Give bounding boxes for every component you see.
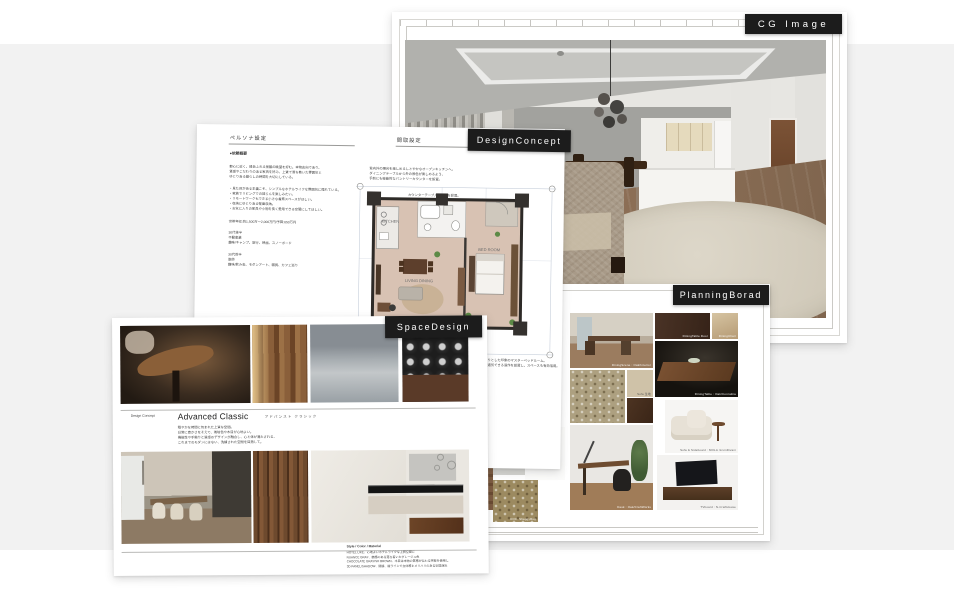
cg-ceiling-detector — [557, 51, 564, 56]
cg-pendant-cord — [610, 40, 611, 96]
pb-sample-chair: DiningChair — [712, 313, 738, 339]
layout-header: 間取設定 — [397, 137, 422, 144]
plan-living-label: LIVING DINING — [405, 278, 433, 283]
pb-dining-photo: DiningScene : Oak/Interior — [570, 313, 653, 368]
tile-sample — [368, 496, 463, 515]
material-title: Style / Color / Material — [347, 543, 479, 549]
sd-chair-photo — [120, 325, 251, 404]
style-name: Advanced Classic — [178, 411, 249, 421]
template-line — [486, 532, 758, 533]
header-rule — [229, 143, 355, 146]
pb-tv-board-photo: TVboard : N-CraftHouse — [657, 455, 738, 510]
concept-label: Design Concept — [131, 414, 155, 418]
persona-header: ペルソナ設定 — [230, 134, 267, 142]
sd-material-collage — [311, 450, 470, 543]
pb-sample-door: DiningTable Door — [655, 313, 710, 339]
divider-rule — [121, 407, 476, 410]
sd-interior-photo — [121, 451, 252, 544]
material-lines: HOTEL LIKE、心地よいホテルライクな上質空間に NUANCE GRAY、… — [347, 549, 479, 568]
pb-desk-photo: Desk : Oak/CraftWorks — [570, 425, 653, 510]
design-concept-label: DesignConcept — [468, 129, 571, 152]
pb-walnut-table-photo: DiningTable : Oak/Connubia — [655, 341, 738, 397]
overview-title: ●依頼概要 — [230, 151, 248, 157]
plan-bedroom-label: BED ROOM — [478, 247, 500, 252]
wood-sample — [409, 518, 463, 534]
presentation-canvas: CG Image DiningScene : Oak/Interior Dini… — [0, 0, 954, 604]
pb-dark-sample — [627, 398, 653, 423]
sd-wood-slats-photo — [253, 451, 309, 543]
style-kana: アドバンスト クラシック — [265, 415, 318, 420]
plan-kitchen-label: KITCHEN — [382, 219, 400, 224]
wish-list: ・見た目がある主義こそ、シンプルなホテルライクな雰囲気に憧れている。 ・家族でリ… — [229, 186, 364, 213]
planning-board-label: PlanningBorad — [673, 285, 769, 305]
space-design-label: SpaceDesign — [385, 315, 482, 338]
pb-white-sofa-photo: Sofa & Sideboard : MOLA /LivinDivani — [665, 400, 738, 453]
pb-gold-carpet-sample: COC. ShaggyRug — [493, 480, 538, 522]
style-paragraph: 穏やかな時間に包まれた上質な空間。 日常に豊かさをそえて、琥珀色や木目が心地よい… — [178, 424, 378, 446]
wife-profile: 30代前半 医師 趣味/飲み会、モダンアート、雑貨、カフェ巡り — [228, 252, 298, 268]
template-line — [486, 527, 758, 528]
pb-carpet-sample — [570, 370, 625, 423]
cg-upper-cabinets — [666, 123, 712, 151]
cg-image-label: CG Image — [745, 14, 842, 34]
sd-bark-photo — [252, 325, 308, 403]
persona-paragraph: 都心に近く、緑あふれる景観の眺望を好む。本物志向であり、 質感やこだわりのある家… — [229, 164, 359, 181]
marble-sample — [368, 485, 463, 494]
space-design-sheet: Design Concept Advanced Classic アドバンスト ク… — [112, 315, 489, 576]
budget-line: 世帯年収:約1,500万〜2,000万円/予算:650万円 — [229, 219, 297, 225]
pb-sofa-fabric-sample: Sofa 生地 — [627, 370, 653, 397]
husband-profile: 30代後半 不動産業 趣味/キャンプ、旅行、映画、スノーボード — [228, 230, 292, 246]
